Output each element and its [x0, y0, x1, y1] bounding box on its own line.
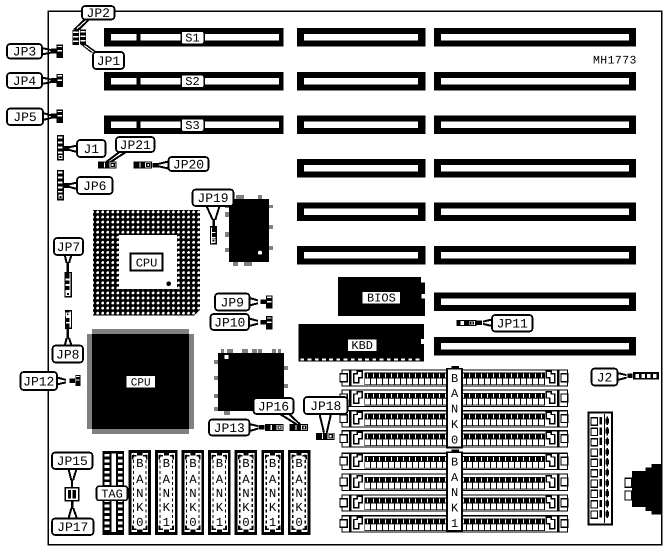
- svg-text:JP4: JP4: [13, 74, 37, 89]
- svg-text:K: K: [216, 501, 224, 515]
- svg-text:B: B: [269, 457, 276, 471]
- svg-text:K: K: [189, 501, 197, 515]
- svg-text:JP12: JP12: [23, 374, 54, 389]
- svg-text:N: N: [242, 487, 249, 501]
- svg-text:0: 0: [295, 516, 302, 530]
- svg-text:0: 0: [242, 516, 249, 530]
- svg-text:1: 1: [216, 516, 223, 530]
- svg-text:N: N: [189, 487, 196, 501]
- svg-text:JP21: JP21: [120, 138, 151, 153]
- svg-text:A: A: [242, 473, 250, 487]
- svg-text:A: A: [451, 471, 459, 485]
- svg-text:JP19: JP19: [197, 191, 228, 206]
- svg-text:J2: J2: [597, 370, 613, 385]
- svg-text:JP18: JP18: [310, 399, 341, 414]
- svg-text:MH1773: MH1773: [593, 55, 637, 68]
- svg-text:A: A: [163, 473, 171, 487]
- svg-text:1: 1: [451, 517, 458, 531]
- svg-text:K: K: [451, 418, 459, 432]
- svg-text:JP5: JP5: [13, 110, 36, 125]
- svg-text:JP9: JP9: [221, 295, 244, 310]
- svg-text:BIOS: BIOS: [367, 292, 396, 306]
- svg-text:JP11: JP11: [497, 317, 528, 332]
- svg-text:B: B: [136, 457, 143, 471]
- svg-text:JP7: JP7: [57, 240, 80, 255]
- svg-text:0: 0: [451, 433, 458, 447]
- svg-text:CPU: CPU: [136, 256, 158, 270]
- svg-text:K: K: [295, 501, 303, 515]
- svg-text:JP2: JP2: [87, 6, 110, 21]
- svg-text:S1: S1: [185, 31, 199, 45]
- svg-text:K: K: [136, 501, 144, 515]
- svg-text:1: 1: [163, 516, 170, 530]
- svg-text:KBD: KBD: [351, 339, 373, 353]
- svg-text:K: K: [163, 501, 171, 515]
- svg-text:S3: S3: [185, 119, 199, 133]
- svg-text:JP16: JP16: [258, 399, 289, 414]
- svg-text:B: B: [295, 457, 302, 471]
- svg-text:JP3: JP3: [13, 45, 36, 60]
- svg-text:S2: S2: [185, 75, 199, 89]
- svg-text:0: 0: [136, 516, 143, 530]
- svg-text:CPU: CPU: [131, 378, 151, 390]
- svg-text:A: A: [189, 473, 197, 487]
- svg-text:JP15: JP15: [57, 454, 88, 469]
- svg-text:N: N: [295, 487, 302, 501]
- svg-text:B: B: [451, 372, 458, 386]
- svg-text:N: N: [216, 487, 223, 501]
- svg-text:N: N: [163, 487, 170, 501]
- svg-text:B: B: [189, 457, 196, 471]
- svg-text:B: B: [163, 457, 170, 471]
- svg-text:B: B: [242, 457, 249, 471]
- svg-text:N: N: [451, 486, 458, 500]
- svg-text:JP1: JP1: [97, 54, 121, 69]
- svg-text:K: K: [451, 502, 459, 516]
- svg-text:A: A: [295, 473, 303, 487]
- svg-text:JP10: JP10: [214, 315, 245, 330]
- svg-text:A: A: [216, 473, 224, 487]
- svg-text:K: K: [269, 501, 277, 515]
- svg-text:0: 0: [189, 516, 196, 530]
- svg-text:JP17: JP17: [57, 520, 88, 535]
- svg-text:A: A: [136, 473, 144, 487]
- svg-text:B: B: [216, 457, 223, 471]
- svg-text:JP13: JP13: [214, 421, 245, 436]
- svg-text:A: A: [269, 473, 277, 487]
- svg-text:K: K: [242, 501, 250, 515]
- svg-text:N: N: [136, 487, 143, 501]
- svg-text:1: 1: [269, 516, 276, 530]
- svg-text:JP20: JP20: [173, 157, 204, 172]
- svg-text:TAG: TAG: [101, 488, 123, 502]
- svg-text:A: A: [451, 387, 459, 401]
- svg-text:N: N: [269, 487, 276, 501]
- svg-text:B: B: [451, 455, 458, 469]
- svg-text:N: N: [451, 403, 458, 417]
- svg-text:JP8: JP8: [56, 347, 79, 362]
- svg-text:JP6: JP6: [83, 179, 106, 194]
- svg-text:J1: J1: [83, 142, 99, 157]
